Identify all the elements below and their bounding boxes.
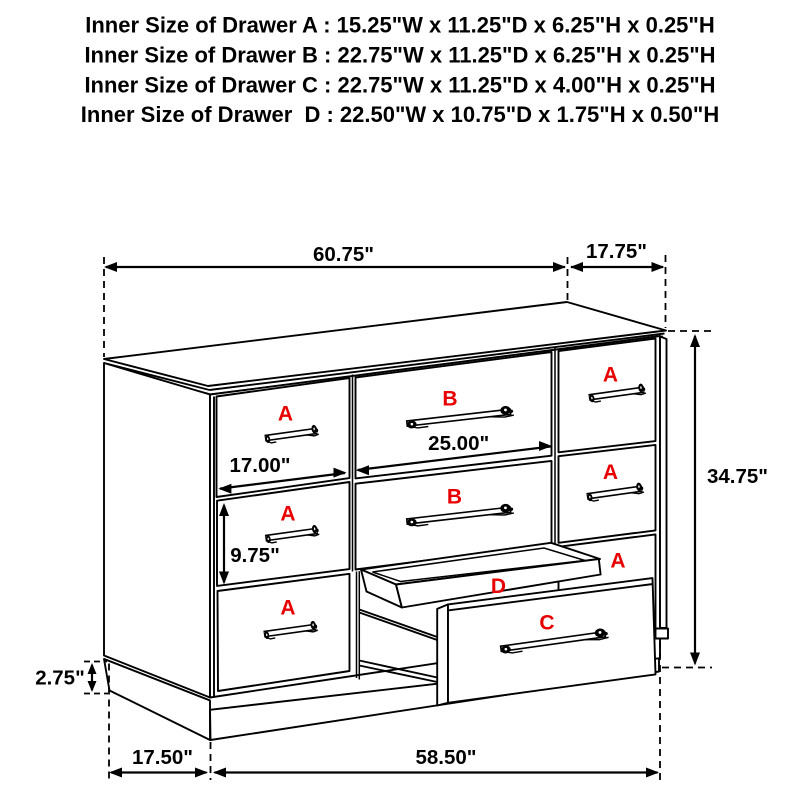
svg-text:C: C xyxy=(539,612,554,635)
svg-text:Inner Size of Drawer B : 22.75: Inner Size of Drawer B : 22.75"W x 11.25… xyxy=(84,43,715,68)
svg-text:17.00": 17.00" xyxy=(229,454,290,477)
svg-text:B: B xyxy=(442,388,457,411)
svg-text:A: A xyxy=(280,597,295,620)
svg-text:A: A xyxy=(280,503,295,526)
svg-text:Inner Size of Drawer D : 22.5: Inner Size of Drawer D : 22.50"W x 10.75… xyxy=(81,102,719,127)
svg-text:34.75": 34.75" xyxy=(707,465,768,488)
svg-text:58.50": 58.50" xyxy=(415,746,476,769)
svg-text:A: A xyxy=(610,550,625,573)
svg-text:17.50": 17.50" xyxy=(132,746,193,769)
svg-text:25.00": 25.00" xyxy=(428,432,489,455)
svg-text:17.75": 17.75" xyxy=(586,240,647,263)
svg-text:9.75": 9.75" xyxy=(230,544,280,567)
svg-text:B: B xyxy=(447,486,462,509)
svg-text:A: A xyxy=(278,403,293,426)
svg-text:Inner Size of Drawer A : 15.25: Inner Size of Drawer A : 15.25"W x 11.25… xyxy=(85,13,714,38)
svg-text:60.75": 60.75" xyxy=(313,243,374,266)
svg-text:D: D xyxy=(491,575,506,598)
svg-text:A: A xyxy=(603,364,618,387)
svg-text:Inner Size of Drawer C : 22.75: Inner Size of Drawer C : 22.75"W x 11.25… xyxy=(84,73,715,98)
svg-text:2.75": 2.75" xyxy=(35,667,85,690)
svg-text:A: A xyxy=(603,461,618,484)
